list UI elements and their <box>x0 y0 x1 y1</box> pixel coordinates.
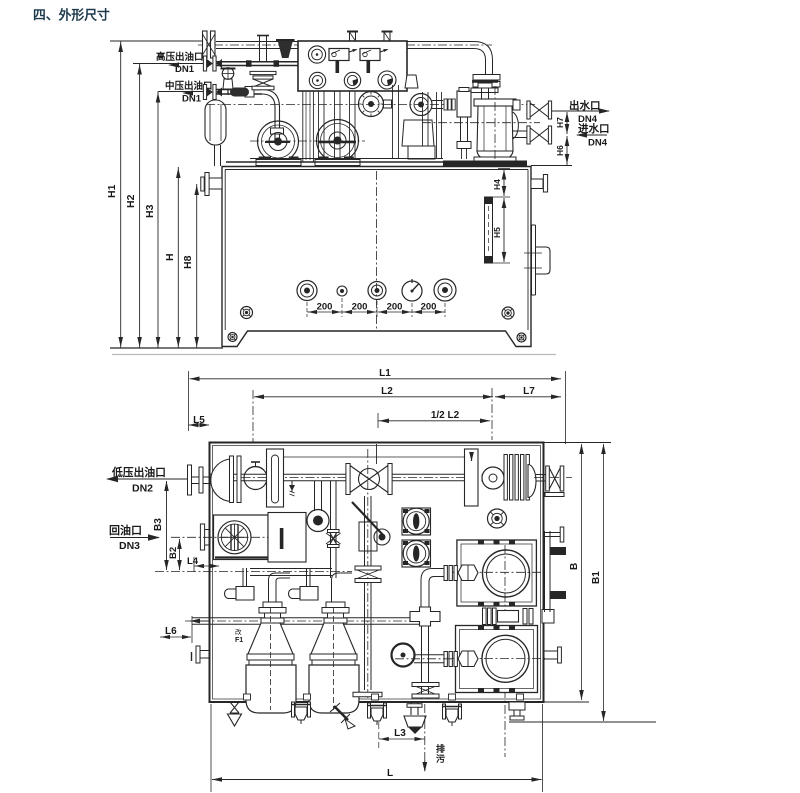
svg-text:DN2: DN2 <box>132 483 153 495</box>
svg-text:四、外形尺寸: 四、外形尺寸 <box>33 8 110 23</box>
svg-text:B2: B2 <box>168 547 179 559</box>
svg-text:200: 200 <box>387 302 403 313</box>
svg-text:DN4: DN4 <box>588 138 608 149</box>
svg-text:L3: L3 <box>394 728 406 739</box>
svg-text:H7: H7 <box>555 117 565 128</box>
svg-text:L5: L5 <box>193 415 205 426</box>
svg-text:B1: B1 <box>591 571 602 584</box>
svg-text:200: 200 <box>317 302 333 313</box>
svg-text:回油口: 回油口 <box>109 523 142 537</box>
svg-text:L7: L7 <box>523 386 535 397</box>
svg-text:L2: L2 <box>381 386 393 397</box>
svg-text:L1: L1 <box>379 368 391 379</box>
svg-text:H2: H2 <box>125 194 137 208</box>
svg-text:L: L <box>387 768 393 779</box>
svg-text:污: 污 <box>436 753 445 764</box>
svg-text:L4: L4 <box>187 556 199 567</box>
svg-text:高压出油口: 高压出油口 <box>156 51 204 63</box>
svg-text:H6: H6 <box>555 145 565 156</box>
svg-text:H: H <box>164 253 176 261</box>
svg-text:出水口: 出水口 <box>569 99 601 112</box>
svg-text:200: 200 <box>421 302 437 313</box>
svg-text:H1: H1 <box>106 184 118 198</box>
svg-text:L6: L6 <box>165 626 177 637</box>
svg-text:H8: H8 <box>182 255 194 269</box>
svg-text:DN3: DN3 <box>119 540 140 552</box>
svg-text:进水口: 进水口 <box>578 122 610 135</box>
svg-text:F1: F1 <box>235 637 243 644</box>
svg-text:改: 改 <box>235 627 242 636</box>
svg-text:1/2 L2: 1/2 L2 <box>431 410 460 421</box>
svg-text:H4: H4 <box>492 179 502 190</box>
svg-text:B: B <box>569 563 580 570</box>
svg-text:排: 排 <box>436 743 445 754</box>
svg-text:B3: B3 <box>153 518 164 531</box>
svg-text:H5: H5 <box>492 227 502 238</box>
svg-text:200: 200 <box>352 302 368 313</box>
svg-text:H3: H3 <box>144 204 156 218</box>
svg-text:低压出油口: 低压出油口 <box>111 465 166 479</box>
